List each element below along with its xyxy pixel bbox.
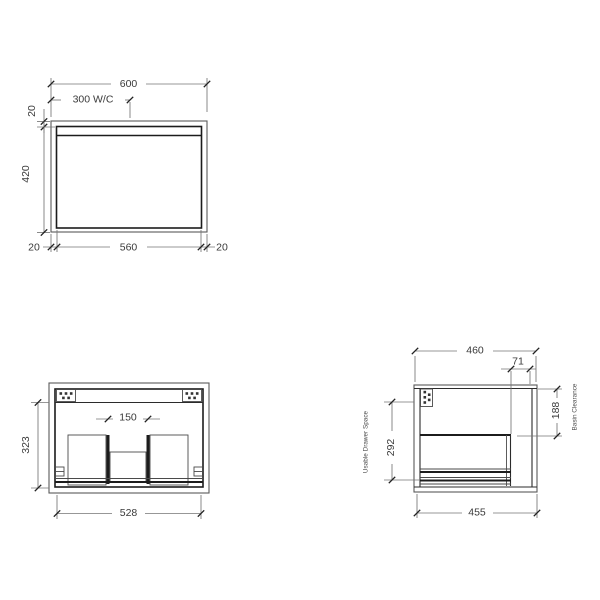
left-clip-box bbox=[57, 390, 76, 402]
dim-front-offset: 71 bbox=[501, 356, 536, 435]
internal-view-outer-outline bbox=[49, 383, 209, 493]
dim-bottom-depth-text: 455 bbox=[468, 507, 486, 519]
basin-clearance-label: Basin Clearance bbox=[572, 383, 579, 430]
dim-front-offset-text: 71 bbox=[512, 356, 524, 368]
drawing-canvas: 600 300 W/C 20 420 bbox=[0, 0, 600, 600]
dim-centre-gap-text: 150 bbox=[119, 412, 137, 424]
dim-bottom-right-text: 20 bbox=[216, 242, 228, 254]
dim-drawer-space: 292 Usable Drawer Space bbox=[363, 399, 421, 483]
dim-centre-gap: 150 bbox=[96, 412, 160, 424]
left-wall-clip bbox=[56, 467, 65, 476]
front-view: 600 300 W/C 20 420 bbox=[20, 78, 228, 254]
internal-front-view: 150 323 bbox=[20, 383, 209, 519]
side-clip-box bbox=[421, 389, 433, 407]
vanity-technical-drawing: 600 300 W/C 20 420 bbox=[0, 0, 600, 600]
side-view: 460 71 188 Basin Clearance bbox=[363, 345, 579, 519]
dim-depth-text: 460 bbox=[466, 345, 484, 357]
front-view-outer-outline bbox=[51, 121, 207, 232]
dim-front-height: 420 bbox=[20, 122, 50, 236]
dim-front-width-text: 600 bbox=[120, 78, 138, 90]
dim-front-height-text: 420 bbox=[20, 165, 32, 183]
dim-drawer-space-text: 292 bbox=[385, 439, 397, 457]
dim-internal-height-text: 323 bbox=[20, 436, 32, 454]
left-drawer-box bbox=[68, 435, 106, 485]
dim-front-bottom: 20 560 20 bbox=[28, 230, 228, 254]
usable-drawer-space-label: Usable Drawer Space bbox=[363, 410, 370, 473]
dim-bottom-width-text: 560 bbox=[120, 242, 138, 254]
dim-internal-height: 323 bbox=[20, 399, 49, 491]
right-drawer-box bbox=[150, 435, 188, 485]
dim-wc-offset-text: 300 W/C bbox=[73, 94, 114, 106]
dim-wc-offset: 300 W/C bbox=[48, 94, 133, 119]
dim-basin-clearance: 188 Basin Clearance bbox=[517, 383, 579, 439]
dim-bottom-depth: 455 bbox=[414, 494, 540, 519]
dim-internal-width-text: 528 bbox=[120, 507, 138, 519]
internal-view-inner-carcass bbox=[55, 389, 203, 487]
dim-bottom-left-text: 20 bbox=[28, 242, 40, 254]
dim-top-panel-text: 20 bbox=[26, 105, 38, 117]
right-wall-clip bbox=[194, 467, 203, 476]
front-view-inner-carcass bbox=[57, 127, 202, 229]
dim-basin-clearance-text: 188 bbox=[550, 402, 562, 420]
centre-recess-box bbox=[110, 452, 146, 482]
right-clip-box bbox=[183, 390, 202, 402]
dim-internal-width: 528 bbox=[54, 495, 204, 519]
